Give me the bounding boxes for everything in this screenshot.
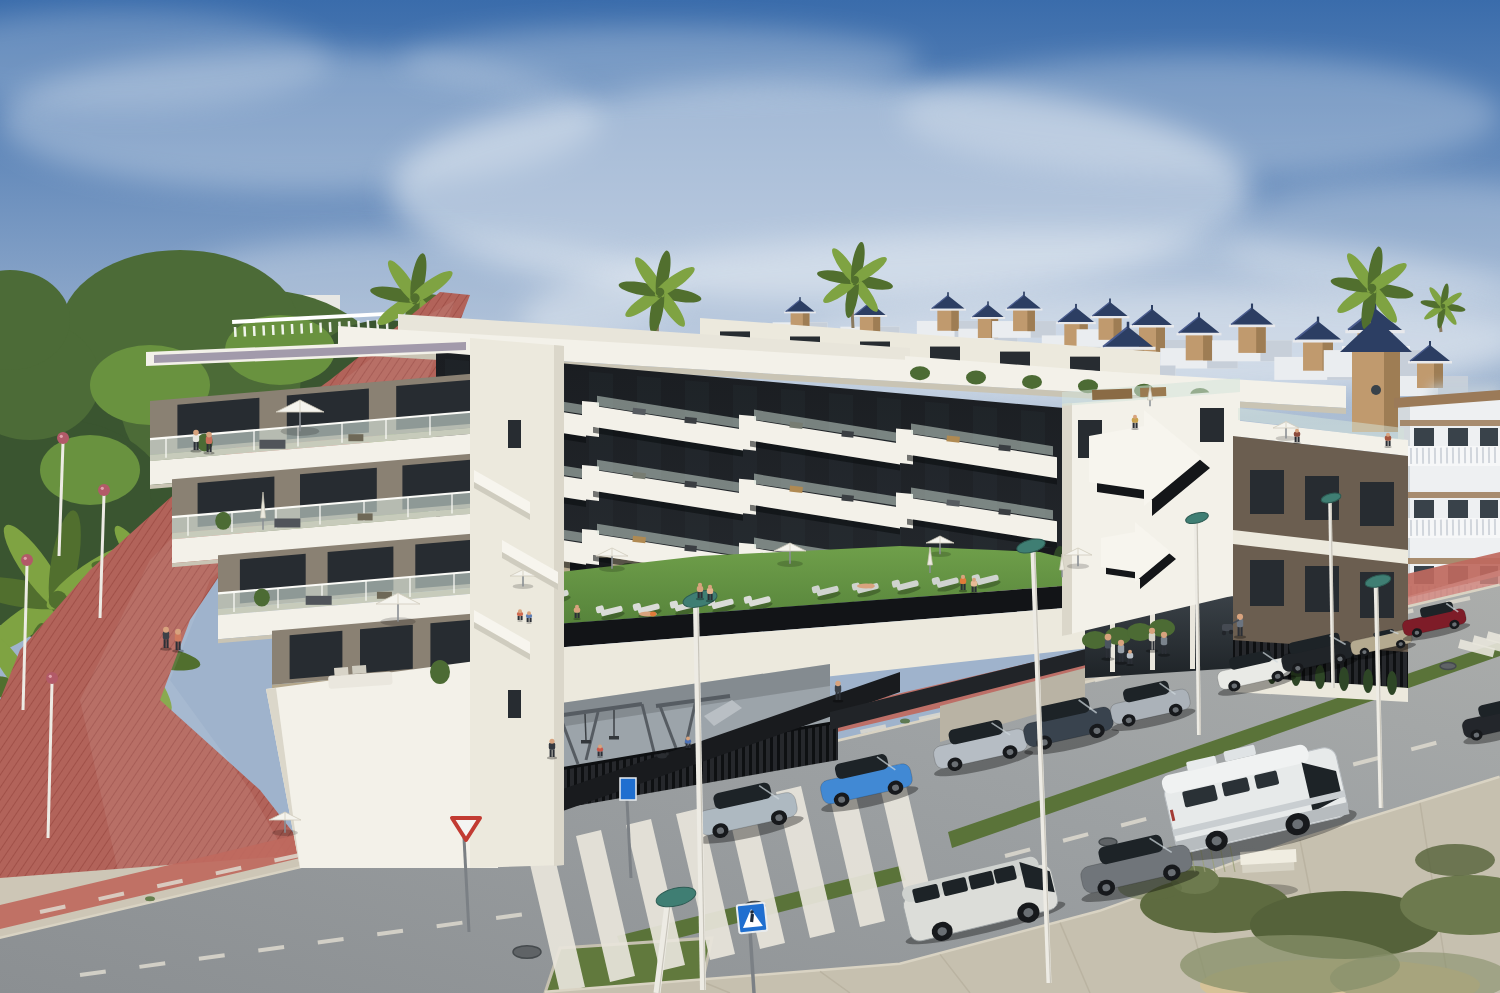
tower-slit-window [508, 690, 521, 718]
person-leg [836, 692, 838, 700]
pram-wheel [1222, 631, 1226, 635]
person-head [1237, 614, 1243, 620]
person-leg [1162, 645, 1164, 654]
villa-finial [947, 292, 949, 296]
person-leg [1131, 658, 1133, 664]
person-leg [179, 641, 181, 650]
villa-finial [1251, 304, 1253, 309]
villa-eave [1229, 325, 1275, 328]
villa-eave [971, 317, 1005, 319]
person-shadow [573, 618, 580, 620]
person-leg [176, 641, 178, 650]
pink-lamp-globe [98, 484, 110, 496]
person-head [1128, 650, 1132, 654]
person-leg [167, 639, 169, 648]
person-leg [1298, 437, 1300, 442]
pedestrian-crossing-sign [737, 903, 768, 934]
person-leg [601, 751, 603, 756]
villa-eave [1177, 333, 1222, 336]
person-shadow [970, 592, 978, 594]
villa-finial [1023, 292, 1025, 296]
roof-plant [1022, 375, 1042, 389]
person-leg [964, 584, 966, 590]
terrace-plant [215, 512, 231, 530]
ground-plant [430, 660, 450, 684]
balcony-table [998, 508, 1011, 515]
balcony-table [841, 495, 854, 502]
manhole [513, 946, 541, 959]
pink-lamp-globe [46, 672, 58, 684]
person-head [1133, 415, 1137, 419]
person-head [1118, 640, 1124, 646]
villa-eave [1130, 325, 1174, 328]
pink-lamp-highlight [24, 557, 27, 560]
villa-eave [1091, 316, 1130, 318]
villa-finial [1075, 304, 1077, 309]
person-head [686, 736, 690, 740]
person-head [575, 605, 579, 609]
person-leg [711, 594, 713, 600]
villa-finial [1109, 298, 1111, 302]
villa-finial [987, 301, 989, 305]
swing-seat [609, 736, 619, 740]
weed-tuft [145, 896, 155, 901]
person-leg [210, 444, 212, 452]
palm-crown [410, 293, 419, 302]
person-leg [1150, 641, 1152, 650]
person-head [1386, 433, 1390, 437]
person-head [175, 629, 181, 635]
med-eave [1400, 492, 1500, 498]
pine-tree [40, 435, 140, 505]
person-leg [1128, 658, 1130, 664]
cloud [900, 55, 1500, 175]
person-head [708, 585, 712, 589]
balcony-table [684, 545, 697, 552]
villa-finial [799, 297, 800, 301]
stair-tower-shade [554, 345, 564, 866]
med-eave [1400, 420, 1500, 426]
villa-tower-shade [1256, 326, 1265, 353]
brown-window [1250, 470, 1284, 514]
person-leg [598, 751, 600, 756]
roof-wicker-chair [1140, 387, 1166, 397]
person-leg [1386, 441, 1388, 446]
weed-tuft [900, 719, 910, 724]
person-lying-towel [650, 612, 656, 617]
person-shadow [547, 757, 557, 760]
terrace-sofa [274, 518, 300, 527]
shop-mullion [1190, 597, 1195, 669]
manhole [1440, 662, 1456, 669]
person-leg [194, 442, 196, 450]
person-shadow [526, 622, 532, 624]
facade-glass-stripe [685, 380, 709, 565]
person-leg [578, 613, 580, 618]
roof-wicker-sofa [1092, 389, 1132, 400]
person-leg [527, 618, 529, 622]
person-head [972, 578, 976, 582]
pink-lamp-highlight [60, 435, 63, 438]
person-leg [207, 444, 209, 452]
person-shadow [1126, 664, 1134, 666]
palm-crown [1368, 284, 1377, 293]
person-leg [164, 639, 166, 648]
pink-lamp-globe [21, 554, 33, 566]
stair-tower [470, 338, 564, 868]
person-leg [689, 743, 691, 748]
architectural-render [0, 0, 1500, 993]
terrace-sofa [306, 596, 332, 605]
villa-finial [1151, 305, 1153, 310]
terrace-plant [254, 589, 270, 607]
person-leg [1106, 648, 1108, 658]
swing-seat [581, 740, 591, 744]
brown-window [1250, 560, 1284, 606]
person-shadow [1101, 657, 1114, 661]
person-shadow [959, 590, 967, 592]
villa-tower-shade [1156, 326, 1165, 352]
person-shadow [172, 649, 184, 652]
roof-plant [910, 366, 930, 380]
person-leg [1109, 648, 1111, 658]
person-head [1295, 429, 1299, 433]
person-leg [518, 616, 520, 620]
terrace-sofa [259, 440, 285, 449]
villa-tower-shade [1434, 362, 1443, 388]
palm-crown [656, 288, 665, 297]
scrub-bush [1415, 844, 1495, 876]
person-shadow [190, 449, 201, 452]
person-lying-towel [868, 584, 874, 589]
palm-crown [851, 276, 859, 284]
person-shadow [160, 647, 172, 650]
person-leg [575, 613, 577, 618]
person-head [1161, 632, 1167, 638]
balcony-table [998, 444, 1011, 451]
pink-lamp-highlight [101, 487, 104, 490]
person-leg [708, 594, 710, 600]
person-shadow [517, 620, 523, 622]
right-wing-window [1200, 408, 1224, 442]
villa-tower-shade [1203, 334, 1212, 361]
villa-eave [1408, 361, 1452, 364]
villa-tower-shade [1027, 309, 1035, 331]
pink-lamp-highlight [49, 675, 52, 678]
bush [1082, 631, 1108, 649]
sliding-glass-door [360, 625, 413, 674]
cypress [1363, 669, 1373, 693]
person-head [1149, 628, 1155, 634]
villa-tower-shade [951, 309, 958, 330]
person-head [163, 627, 169, 633]
villa-eave [1293, 340, 1344, 343]
villa-eave [1006, 308, 1043, 310]
person-shadow [1384, 446, 1391, 448]
person-leg [972, 586, 974, 592]
terrace-table [348, 434, 363, 441]
balcony-table [684, 481, 697, 488]
person-shadow [1146, 649, 1158, 653]
person-leg [1238, 627, 1240, 636]
person-leg [698, 592, 700, 598]
person-leg [686, 743, 688, 748]
villa-finial [1198, 312, 1200, 317]
pink-lamp-globe [57, 432, 69, 444]
brown-window [1305, 566, 1339, 612]
person-shadow [1115, 661, 1127, 665]
cloud [400, 26, 920, 94]
sofa-cushion [334, 667, 349, 676]
person-leg [975, 586, 977, 592]
villa-eave [853, 315, 887, 317]
person-leg [1133, 423, 1135, 428]
facade-glass-stripe [733, 384, 757, 568]
person-leg [1153, 641, 1155, 650]
person-shadow [1293, 442, 1300, 444]
person-leg [550, 749, 552, 757]
person-shadow [1234, 635, 1246, 639]
villa-eave [1056, 322, 1096, 324]
person-leg [1119, 653, 1121, 662]
person-leg [701, 592, 703, 598]
person-leg [839, 692, 841, 700]
tower-window [1371, 385, 1381, 395]
person-shadow [203, 451, 214, 454]
person-leg [521, 616, 523, 620]
villa-finial [1127, 322, 1130, 328]
person-head [961, 575, 965, 579]
person-shadow [1131, 428, 1138, 430]
person-shadow [833, 699, 844, 702]
villa-eave [930, 309, 966, 311]
cypress [1339, 667, 1349, 691]
balcony-table [684, 417, 697, 424]
person-head [206, 432, 212, 438]
person-shadow [1158, 653, 1170, 657]
swing-chain [585, 714, 586, 740]
tower-slit-window [508, 420, 521, 448]
person-head [835, 681, 840, 686]
balcony-table [841, 431, 854, 438]
facade-glass-stripe [829, 393, 853, 574]
person-leg [1241, 627, 1243, 636]
cypress [1387, 671, 1397, 695]
roof-plant [966, 371, 986, 385]
pram-wheel [1229, 630, 1233, 634]
person-head [527, 611, 531, 615]
right-wing-edge [1062, 403, 1072, 636]
terrace-table [358, 513, 373, 520]
person-head [698, 583, 702, 587]
person-head [598, 744, 602, 748]
person-leg [530, 618, 532, 622]
villa-finial [1317, 317, 1319, 323]
brown-window [1360, 482, 1394, 526]
villa-finial [1429, 341, 1431, 346]
person-shadow [706, 600, 714, 602]
sofa-cushion [352, 665, 367, 674]
palm-crown [1441, 304, 1446, 309]
person-head [1105, 634, 1112, 641]
villa-eave [784, 312, 816, 314]
person-leg [197, 442, 199, 450]
person-shadow [685, 748, 691, 750]
villa-tower-shade [1384, 348, 1400, 432]
person-leg [1165, 645, 1167, 654]
person-head [193, 430, 199, 436]
person-leg [1122, 653, 1124, 662]
person-leg [961, 584, 963, 590]
person-leg [553, 749, 555, 757]
person-head [518, 609, 522, 613]
person-shadow [696, 598, 704, 600]
blue-info-sign [620, 778, 636, 800]
person-head [549, 739, 554, 744]
person-leg [1136, 423, 1138, 428]
person-leg [1389, 441, 1391, 446]
person-shadow [597, 756, 603, 758]
dog-head [665, 752, 669, 756]
scene-svg [0, 0, 1500, 993]
